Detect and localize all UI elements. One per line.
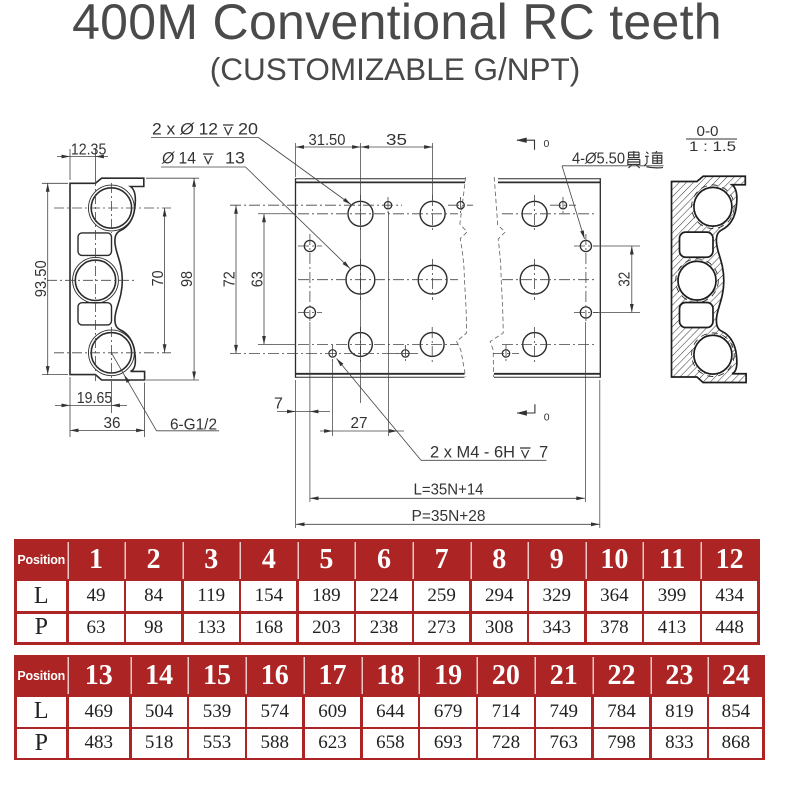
svg-text:P=35N+28: P=35N+28: [412, 508, 486, 525]
svg-text:2 x M4 - 6H: 2 x M4 - 6H: [430, 444, 515, 462]
svg-text:L=35N+14: L=35N+14: [414, 482, 484, 499]
svg-text:63: 63: [249, 271, 266, 287]
svg-text:12.35: 12.35: [71, 142, 107, 159]
svg-text:4-Ø5.50: 4-Ø5.50: [572, 151, 625, 168]
svg-text:72: 72: [221, 271, 238, 287]
svg-text:19.65: 19.65: [77, 390, 113, 407]
svg-text:6-G1/2: 6-G1/2: [170, 417, 217, 434]
svg-text:Ø 14: Ø 14: [161, 150, 196, 168]
svg-text:7: 7: [539, 444, 548, 462]
svg-text:32: 32: [616, 272, 633, 287]
svg-text:7: 7: [274, 396, 283, 413]
svg-text:1 : 1.5: 1 : 1.5: [689, 139, 736, 154]
svg-text:70: 70: [150, 270, 167, 286]
svg-text:98: 98: [179, 271, 196, 287]
svg-text:31.50: 31.50: [309, 132, 346, 149]
svg-text:93.50: 93.50: [33, 260, 50, 297]
svg-text:0: 0: [544, 138, 550, 150]
svg-text:13: 13: [225, 150, 245, 168]
svg-text:36: 36: [104, 415, 121, 432]
svg-text:2 x Ø 12: 2 x Ø 12: [152, 121, 218, 139]
svg-text:0: 0: [544, 412, 550, 424]
svg-text:20: 20: [238, 121, 258, 139]
svg-text:35: 35: [386, 132, 407, 149]
svg-text:27: 27: [351, 415, 368, 432]
svg-text:0-0: 0-0: [697, 124, 719, 140]
